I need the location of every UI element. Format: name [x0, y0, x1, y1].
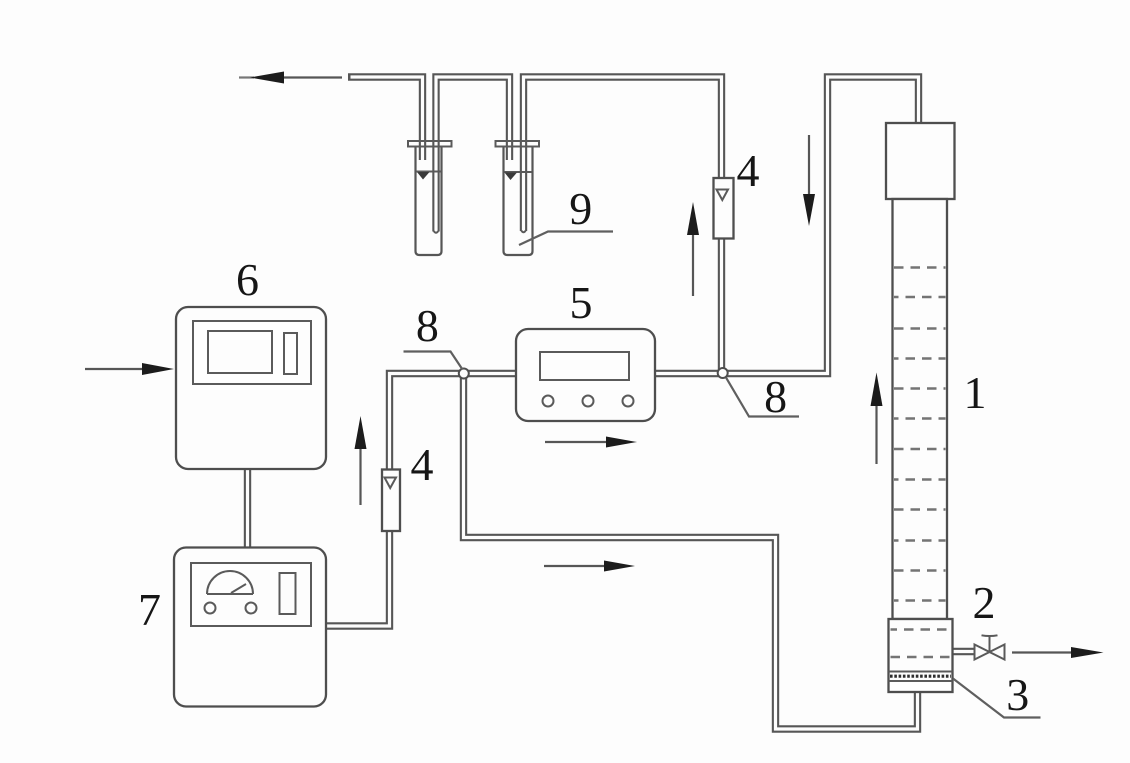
svg-text:8: 8 — [764, 371, 787, 422]
svg-text:4: 4 — [737, 145, 760, 196]
svg-text:5: 5 — [570, 277, 593, 328]
svg-text:4: 4 — [411, 439, 434, 490]
svg-text:7: 7 — [138, 584, 161, 635]
svg-text:2: 2 — [973, 577, 996, 628]
svg-text:1: 1 — [964, 367, 987, 418]
svg-text:9: 9 — [569, 183, 592, 234]
svg-text:6: 6 — [236, 254, 259, 305]
svg-text:3: 3 — [1006, 669, 1029, 720]
svg-text:8: 8 — [416, 300, 439, 351]
